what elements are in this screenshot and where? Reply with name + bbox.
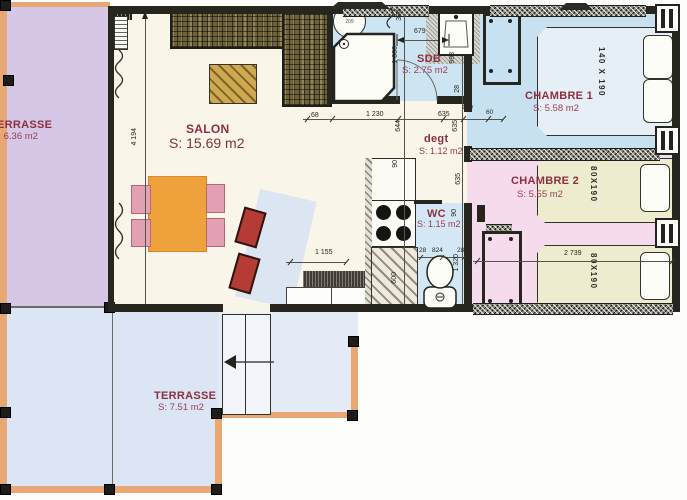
terrace-post bbox=[0, 0, 11, 11]
terrace-border bbox=[5, 2, 110, 7]
dim-label: 28 bbox=[454, 85, 461, 93]
wall-sdb-left bbox=[327, 12, 333, 101]
dimension-line bbox=[473, 261, 673, 262]
dim-label: 90 bbox=[451, 209, 458, 217]
terrace-post bbox=[3, 75, 14, 86]
wall-sdb-bottom-a bbox=[327, 96, 400, 104]
door-jamb bbox=[477, 205, 485, 222]
terrace-post bbox=[211, 484, 222, 495]
room-area-wc: S: 1.15 m2 bbox=[417, 220, 461, 229]
terrace-post bbox=[211, 408, 222, 419]
room-name-terrasse-left: TERRASSE bbox=[0, 120, 52, 131]
dimension-line bbox=[398, 40, 448, 41]
terrace-divider-line bbox=[7, 306, 112, 308]
terrace-border bbox=[0, 308, 7, 492]
room-name-terrasse-bottom: TERRASSE bbox=[154, 391, 216, 402]
dim-label: 635 bbox=[452, 120, 459, 132]
terrace-post bbox=[104, 484, 115, 495]
room-area-degt: S: 1.12 m2 bbox=[419, 147, 463, 156]
dim-label: 1 230 bbox=[366, 111, 384, 118]
dim-label: 993 bbox=[449, 52, 456, 64]
dim-label: 2 739 bbox=[564, 250, 582, 257]
dim-label: 60 bbox=[486, 110, 493, 117]
water-heater-label: 209 bbox=[345, 19, 353, 25]
media-unit bbox=[303, 271, 372, 287]
chair bbox=[131, 185, 151, 214]
dim-label: 396 bbox=[396, 9, 403, 21]
room-area-sdb: S: 2.75 m2 bbox=[402, 66, 448, 76]
room-name-chambre2: CHAMBRE 2 bbox=[511, 176, 579, 187]
pillow bbox=[643, 35, 673, 79]
wardrobe-chambre1 bbox=[483, 13, 521, 85]
wall-right bbox=[672, 6, 680, 312]
floor-plan: 209 140 X 190 80X190 80X190 bbox=[0, 0, 687, 500]
room-name-chambre1: CHAMBRE 1 bbox=[525, 91, 593, 102]
pillow bbox=[640, 164, 670, 212]
entrance-stairs bbox=[222, 314, 271, 415]
dim-label: 635 bbox=[455, 173, 462, 185]
terrace-border bbox=[0, 2, 7, 308]
dimension-line bbox=[404, 14, 405, 304]
single-bed-size-label: 80X190 bbox=[589, 166, 597, 203]
dimension-line bbox=[462, 14, 463, 304]
room-area-chambre1: S: 5.58 m2 bbox=[533, 104, 579, 114]
radiator bbox=[114, 16, 128, 50]
wall-mid-a bbox=[464, 12, 472, 112]
wall-bottom-a bbox=[108, 304, 223, 312]
window-bottom-chambre2 bbox=[473, 303, 673, 315]
dim-label: 28 bbox=[419, 248, 426, 255]
terrace-border bbox=[351, 340, 358, 417]
room-area-salon: S: 15.69 m2 bbox=[169, 136, 245, 150]
terrace-border bbox=[215, 413, 222, 493]
kitchen-counter-top bbox=[170, 12, 288, 49]
wall-chambre-divider bbox=[470, 148, 660, 161]
double-bed-size-label: 140 X 190 bbox=[597, 47, 605, 97]
wall-left-salon bbox=[108, 6, 114, 312]
wardrobe-chambre2 bbox=[482, 231, 522, 313]
room-area-terrasse-left: S: 6.36 m2 bbox=[0, 132, 38, 142]
terrace-post bbox=[0, 303, 11, 314]
dim-label: 90 bbox=[392, 160, 399, 168]
chair bbox=[206, 184, 225, 213]
dim-label: 68 bbox=[311, 112, 319, 119]
room-area-terrasse-bottom: S: 7.51 m2 bbox=[158, 403, 204, 413]
wall-mid-c bbox=[464, 203, 472, 304]
floor-terrasse-left bbox=[7, 6, 108, 308]
dimension-line bbox=[145, 12, 146, 304]
entrance-threshold bbox=[223, 303, 270, 313]
single-bed-size-label: 80X190 bbox=[589, 253, 597, 290]
room-area-chambre2: S: 5.55 m2 bbox=[517, 190, 563, 200]
window-top-sdb bbox=[343, 5, 429, 17]
dim-label: 600 bbox=[391, 272, 398, 284]
dim-label: 635 bbox=[438, 111, 450, 118]
dimension-line bbox=[303, 119, 503, 120]
dim-label: 1 000 bbox=[392, 46, 399, 64]
kitchen-island bbox=[209, 64, 257, 104]
wardrobe-dot bbox=[489, 19, 493, 23]
wardrobe-dot bbox=[488, 237, 492, 241]
terrace-wall-line bbox=[112, 308, 113, 488]
room-name-salon: SALON bbox=[186, 123, 230, 135]
dim-label: 1 155 bbox=[315, 249, 333, 256]
room-name-degt: degt bbox=[424, 134, 448, 145]
wall-wc-top bbox=[414, 200, 442, 204]
chair bbox=[131, 219, 151, 247]
terrace-post bbox=[348, 336, 359, 347]
dim-label: 4 194 bbox=[131, 128, 138, 146]
room-name-sdb: SDB bbox=[417, 54, 441, 65]
dimension-line bbox=[286, 262, 346, 263]
terrace-post bbox=[347, 410, 358, 421]
dim-label: 679 bbox=[414, 28, 426, 35]
dining-table bbox=[148, 176, 207, 252]
kitchen-counter-right bbox=[282, 12, 332, 107]
burner-icon bbox=[376, 205, 391, 220]
dim-label: 824 bbox=[432, 248, 443, 255]
stair-divider bbox=[245, 315, 246, 414]
dim-label: 644 bbox=[395, 120, 402, 132]
dim-label: 1 320 bbox=[453, 254, 460, 272]
chair bbox=[206, 218, 225, 247]
terrace-post bbox=[0, 484, 11, 495]
terrace-post bbox=[0, 407, 11, 418]
stove bbox=[371, 200, 416, 247]
window-top-chambre1 bbox=[490, 5, 646, 17]
burner-icon bbox=[376, 226, 391, 241]
pillow bbox=[643, 79, 673, 123]
pillow bbox=[640, 252, 670, 300]
dim-label: 160 bbox=[462, 105, 473, 112]
